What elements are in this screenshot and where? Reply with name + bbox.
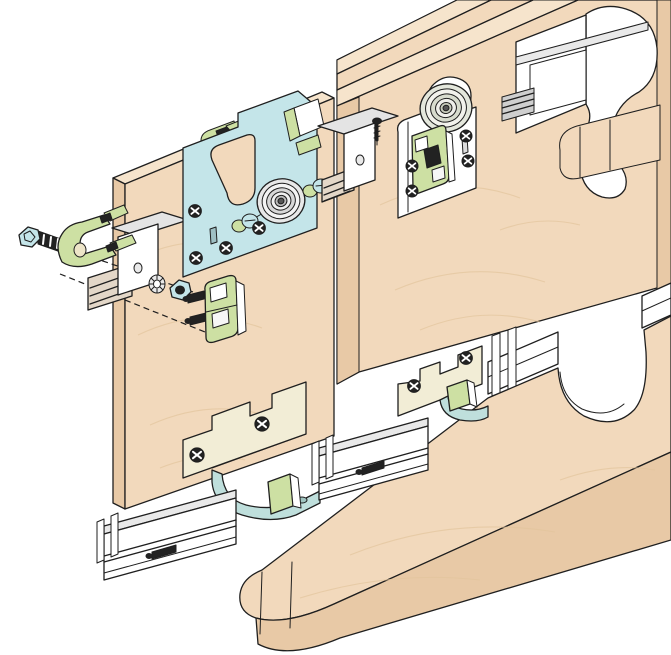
track-channel-wall [111,513,118,557]
housing-slot [210,227,217,244]
screw-icon [220,242,233,255]
screw-icon [406,185,418,197]
screw-icon [460,352,473,365]
screw-icon [460,130,472,142]
bracket-hole [134,263,142,273]
screw-icon [408,380,421,393]
track-channel-wall [492,333,500,396]
clamp-hole [74,243,86,257]
track-channel-wall [326,435,333,479]
screw-icon [189,205,202,218]
track-channel-wall [312,441,319,485]
track-channel-wall [97,519,104,563]
guide-clip [268,474,293,514]
screw-icon [462,155,474,167]
screw-icon [406,160,418,172]
screw-icon [190,252,203,265]
screw-icon [190,448,204,462]
diagram-canvas [0,0,671,655]
track-channel-wall [508,327,516,390]
exploded-hardware-diagram [0,0,671,655]
bracket-hole [356,155,364,165]
screw-icon [253,222,266,235]
screw-icon [255,417,269,431]
serrated-washer [149,275,165,293]
